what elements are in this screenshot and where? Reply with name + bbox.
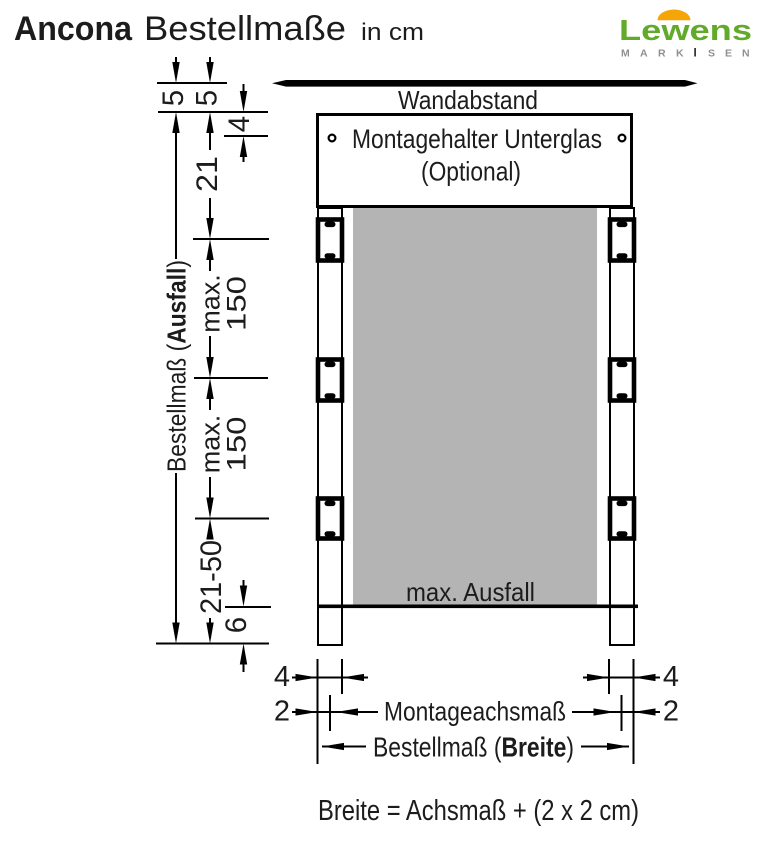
svg-text:A: A [640, 48, 648, 60]
svg-text:6: 6 [220, 617, 253, 633]
svg-text:I: I [694, 48, 697, 60]
svg-text:M: M [621, 48, 630, 60]
svg-text:2: 2 [274, 696, 290, 728]
svg-text:in cm: in cm [361, 19, 424, 46]
svg-text:5: 5 [157, 90, 190, 106]
svg-text:21: 21 [191, 156, 224, 192]
svg-text:4: 4 [663, 661, 679, 693]
svg-text:Wandabstand: Wandabstand [398, 85, 538, 115]
svg-text:Ancona: Ancona [14, 10, 133, 48]
svg-text:5: 5 [191, 90, 224, 106]
svg-text:Bestellmaß (Ausfall): Bestellmaß (Ausfall) [162, 260, 192, 472]
svg-text:Breite = Achsmaß + (2 x 2 cm): Breite = Achsmaß + (2 x 2 cm) [318, 795, 639, 827]
svg-text:150: 150 [222, 417, 252, 472]
svg-text:Lewens: Lewens [619, 15, 752, 47]
svg-text:R: R [658, 48, 666, 60]
svg-text:4: 4 [274, 661, 290, 693]
svg-text:21-50: 21-50 [195, 540, 228, 614]
svg-text:4: 4 [223, 116, 256, 132]
svg-text:max. Ausfall: max. Ausfall [406, 577, 535, 607]
svg-text:Bestellmaß (Breite): Bestellmaß (Breite) [373, 732, 574, 763]
svg-text:K: K [676, 48, 684, 60]
svg-text:Montageachsmaß: Montageachsmaß [384, 697, 566, 727]
svg-text:N: N [742, 48, 750, 60]
svg-text:E: E [725, 48, 732, 60]
svg-text:(Optional): (Optional) [421, 157, 521, 187]
svg-text:Montagehalter Unterglas: Montagehalter Unterglas [352, 124, 602, 154]
svg-text:2: 2 [663, 696, 679, 728]
svg-text:S: S [708, 48, 715, 60]
svg-text:150: 150 [222, 276, 252, 331]
svg-text:Bestellmaße: Bestellmaße [144, 10, 346, 48]
